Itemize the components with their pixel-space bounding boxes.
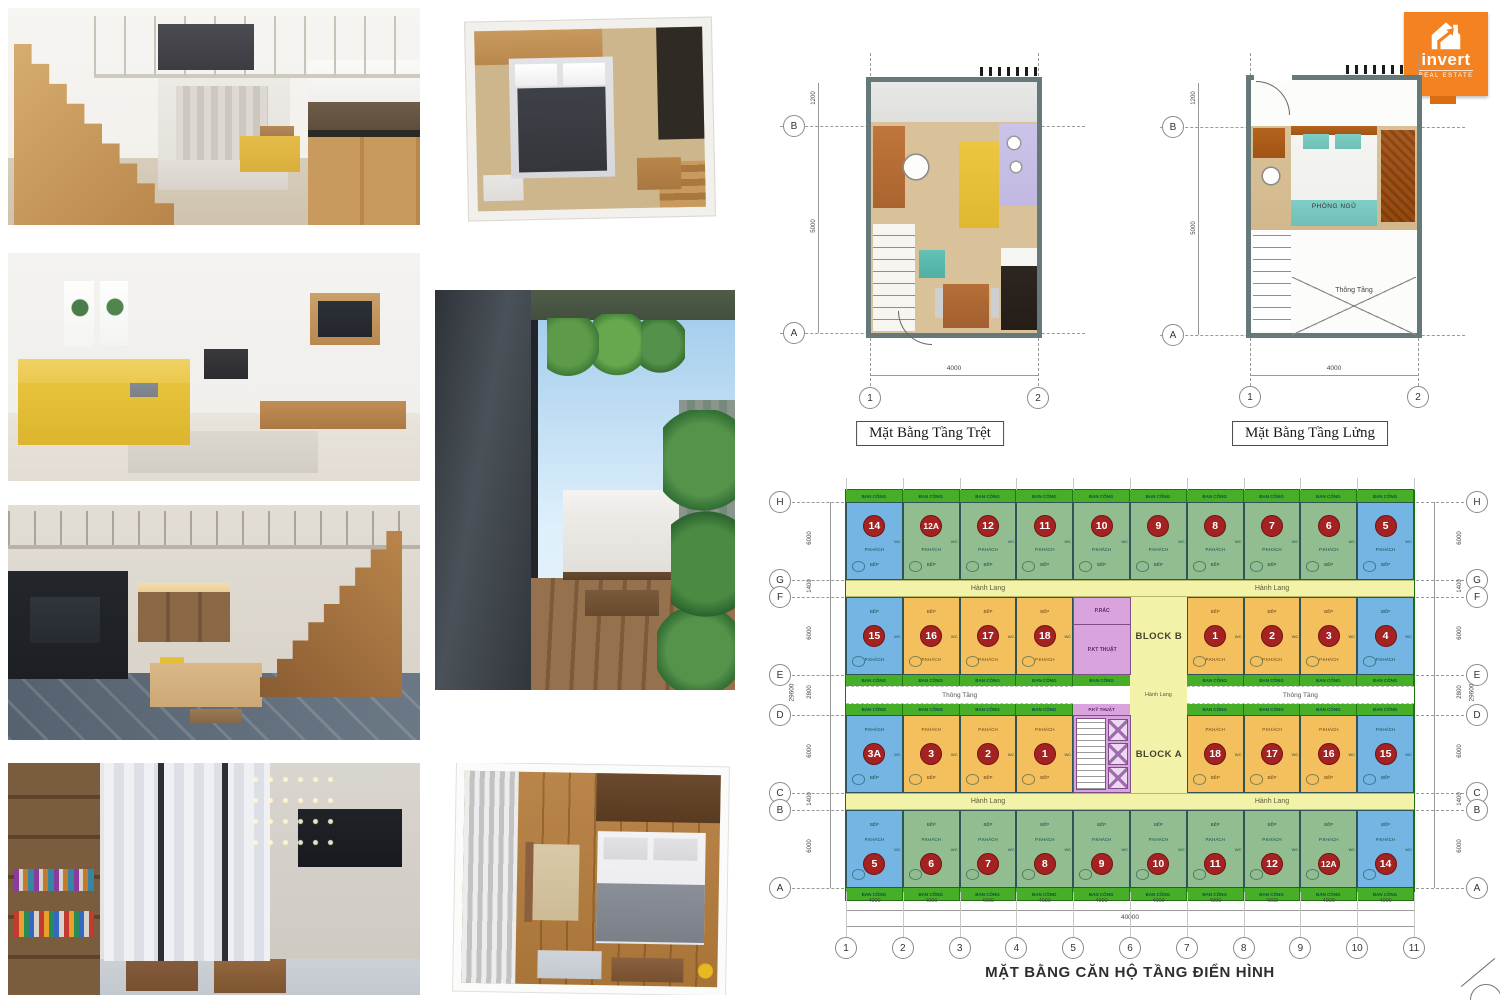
unit-number-badge: 14 (1375, 853, 1397, 875)
grid-marker-8: 8 (1233, 937, 1255, 959)
dimension-label: 5000 (811, 206, 817, 246)
kitchen-label: BẾP (1267, 776, 1276, 781)
living-room-label: P.KHÁCH (865, 728, 884, 733)
corridor-connector: Hành Lang (1130, 686, 1187, 704)
living-room-label: P.KHÁCH (1262, 658, 1281, 663)
wooden-staircase-shape (260, 531, 402, 697)
corridor-label: Hành Lang (971, 585, 1005, 592)
grid-leader-line (792, 502, 844, 503)
grid-leader-line (903, 478, 904, 490)
dimension-line (818, 83, 819, 333)
unit-number-badge: 11 (1034, 515, 1056, 537)
balcony-cell: BAN CÔNG (1016, 490, 1073, 502)
wc-label: WC (951, 752, 958, 757)
living-room-label: P.KHÁCH (1205, 728, 1224, 733)
balcony-cell: BAN CÔNG (846, 490, 903, 502)
dimension-line (1198, 83, 1199, 335)
unit-number-badge: 6 (1318, 515, 1340, 537)
living-room-label: P.KHÁCH (978, 728, 997, 733)
living-room-label: P.KHÁCH (921, 838, 940, 843)
dimension-label: 6000 (1457, 518, 1463, 558)
unit-number-badge: 7 (977, 853, 999, 875)
apartment-unit-11: BẾPP.KHÁCH11WC (1187, 810, 1244, 888)
unit-number-badge: 9 (1147, 515, 1169, 537)
wc-label: WC (1405, 847, 1412, 852)
kitchen-label: BẾP (870, 823, 879, 828)
unit-number-badge: 1 (1204, 625, 1226, 647)
balcony-cell: BAN CÔNG (903, 490, 960, 502)
balcony-cell: BAN CÔNG (960, 490, 1017, 502)
kitchen-label: BẾP (983, 563, 992, 568)
dimension-label: 6000 (1457, 731, 1463, 771)
balcony-segment: BAN CÔNGBAN CÔNGBAN CÔNGBAN CÔNG (1187, 675, 1414, 686)
balcony-strip-mid-upper: BAN CÔNGBAN CÔNGBAN CÔNGBAN CÔNG BAN CÔN… (846, 675, 1414, 686)
grid-leader-line (903, 892, 904, 937)
wc-label: WC (951, 634, 958, 639)
unit-number-badge: 18 (1034, 625, 1056, 647)
railing-hatch (1346, 65, 1404, 74)
dimension-label: 4000 (1357, 898, 1414, 904)
apartment-unit-14: BẾPP.KHÁCH14WC (1357, 810, 1414, 888)
trash-room-label: P.RÁC (1074, 598, 1130, 625)
grid-marker-H: H (769, 491, 791, 513)
living-room-label: P.KHÁCH (1262, 838, 1281, 843)
living-room-label: P.KHÁCH (921, 658, 940, 663)
dimension-label: 4000 (1187, 898, 1244, 904)
photo-living-room-yellow-sofa (8, 253, 420, 481)
grid-marker-4: 4 (1005, 937, 1027, 959)
unit-row-2: BẾP15P.KHÁCHWCBẾP16P.KHÁCHWCBẾP17P.KHÁCH… (846, 597, 1414, 675)
dimension-label: 6000 (807, 518, 813, 558)
kitchen-label: BẾP (1154, 823, 1163, 828)
living-room-label: P.KHÁCH (1205, 548, 1224, 553)
door-swing-arc (898, 311, 932, 345)
dimension-label: 4000 (1073, 898, 1130, 904)
unit-number-badge: 8 (1204, 515, 1226, 537)
dimension-label: 1400 (807, 779, 813, 819)
dimension-label: 6000 (807, 613, 813, 653)
living-room-label: P.KHÁCH (1376, 838, 1395, 843)
unit-number-badge: 12 (977, 515, 999, 537)
wc-label: WC (1349, 752, 1356, 757)
dimension-line (1250, 375, 1418, 376)
wc-label: WC (1065, 634, 1072, 639)
unit-number-badge: 15 (863, 625, 885, 647)
balcony-cell: BAN CÔNG (1187, 490, 1244, 502)
void-label: Thông Tầng (942, 692, 977, 699)
unit-number-badge: 6 (920, 853, 942, 875)
unit-number-badge: 5 (1375, 515, 1397, 537)
grid-marker-7: 7 (1176, 937, 1198, 959)
corridor-strip: Hành Lang Hành Lang (846, 793, 1414, 810)
grid-leader-line (1187, 478, 1188, 490)
apartment-walls (866, 77, 1042, 338)
typical-plan-caption: MẶT BẰNG CĂN HỘ TẦNG ĐIỂN HÌNH (846, 964, 1414, 981)
corridor-connector (1130, 704, 1187, 715)
grid-marker-A: A (1466, 877, 1488, 899)
unit-number-badge: 17 (1261, 743, 1283, 765)
grid-leader-line (792, 715, 844, 716)
living-room-label: P.KHÁCH (1149, 838, 1168, 843)
unit-group-right: P.KHÁCH18BẾPWCP.KHÁCH17BẾPWCP.KHÁCH16BẾP… (1187, 715, 1414, 793)
dimension-label: 4000 (1300, 898, 1357, 904)
grid-leader-line (1416, 715, 1464, 716)
kitchen-label: BẾP (1097, 563, 1106, 568)
unit-row-4: BẾPP.KHÁCH5WCBẾPP.KHÁCH6WCBẾPP.KHÁCH7WCB… (846, 810, 1414, 888)
kitchen-label: BẾP (1267, 610, 1276, 615)
dimension-total: 29600 (789, 673, 796, 713)
grid-leader-line (846, 892, 847, 937)
grid-leader-line (1357, 478, 1358, 490)
kitchen-label: BẾP (1381, 563, 1390, 568)
balcony-cell: BAN CÔNG (1357, 704, 1414, 715)
block-a-label: BLOCK A (1136, 749, 1182, 760)
apartment-unit-8: 8P.KHÁCHBẾPWC (1187, 502, 1244, 580)
grid-marker-F: F (769, 586, 791, 608)
kitchen-label: BẾP (1381, 823, 1390, 828)
building-core-block-b: P.RÁC P.KT THUẬT BLOCK B (1073, 597, 1187, 675)
wc-label: WC (1008, 539, 1015, 544)
balcony-cell: BAN CÔNG (903, 675, 960, 686)
grid-marker-11: 11 (1403, 937, 1425, 959)
grid-leader-line (1300, 478, 1301, 490)
grid-leader-line (1414, 892, 1415, 937)
apartment-unit-6: BẾPP.KHÁCH6WC (903, 810, 960, 888)
wc-label: WC (1292, 634, 1299, 639)
unit-number-badge: 12A (1318, 853, 1340, 875)
balcony-cell: BAN CÔNG (846, 675, 903, 686)
living-room-label: P.KHÁCH (978, 548, 997, 553)
corridor-label: Hành Lang (1145, 692, 1172, 698)
balcony-cell: BAN CÔNG (1016, 704, 1073, 715)
brochure-page: invert REAL ESTATE B A 1 2 1200 5000 400… (0, 0, 1500, 1000)
balcony-cell: BAN CÔNG (1300, 675, 1357, 686)
wc-label: WC (1065, 752, 1072, 757)
grid-leader-line (960, 478, 961, 490)
corridor-label: Hành Lang (1255, 798, 1289, 805)
void-area-right: Thông Tầng (1187, 686, 1414, 704)
apartment-unit-12: 12P.KHÁCHBẾPWC (960, 502, 1017, 580)
wc-label: WC (894, 847, 901, 852)
technical-rooms: P.RÁC P.KT THUẬT (1073, 597, 1131, 675)
elevator-shafts (1108, 718, 1128, 790)
living-room-label: P.KHÁCH (1035, 728, 1054, 733)
balcony-cell: BAN CÔNG (1244, 490, 1301, 502)
dimension-line (870, 375, 1038, 376)
grid-leader-line (792, 580, 844, 581)
living-room-label: P.KHÁCH (1149, 548, 1168, 553)
living-room-label: P.KHÁCH (865, 838, 884, 843)
unit-row-3: P.KHÁCH3ABẾPWCP.KHÁCH3BẾPWCP.KHÁCH2BẾPWC… (846, 715, 1414, 793)
living-room-label: P.KHÁCH (921, 548, 940, 553)
unit-row-1: 14P.KHÁCHBẾPWC12AP.KHÁCHBẾPWC12P.KHÁCHBẾ… (846, 502, 1414, 580)
apartment-unit-7: BẾPP.KHÁCH7WC (960, 810, 1017, 888)
unit-number-badge: 17 (977, 625, 999, 647)
grid-leader-line (1130, 478, 1131, 490)
grid-leader-line (1187, 892, 1188, 937)
building-core-block-a: BLOCK A (1073, 715, 1187, 793)
apartment-unit-9: 9P.KHÁCHBẾPWC (1130, 502, 1187, 580)
living-room-label: P.KHÁCH (1035, 658, 1054, 663)
apartment-unit-9: BẾPP.KHÁCH9WC (1073, 810, 1130, 888)
balcony-cell: BAN CÔNG (1073, 490, 1130, 502)
kitchen-label: BẾP (1040, 563, 1049, 568)
living-room-label: P.KHÁCH (1035, 548, 1054, 553)
wc-label: WC (1349, 634, 1356, 639)
kitchen-label: BẾP (870, 776, 879, 781)
balcony-segment: BAN CÔNGBAN CÔNGBAN CÔNGBAN CÔNG (846, 675, 1073, 686)
unit-group-left: P.KHÁCH3ABẾPWCP.KHÁCH3BẾPWCP.KHÁCH2BẾPWC… (846, 715, 1073, 793)
room-furniture-shapes (474, 27, 706, 212)
unit-number-badge: 18 (1204, 743, 1226, 765)
apartment-unit-18: BẾP18P.KHÁCHWC (1016, 597, 1073, 675)
balcony-strip-mid-lower: BAN CÔNGBAN CÔNGBAN CÔNGBAN CÔNG P.KỸ TH… (846, 704, 1414, 715)
wc-label: WC (1349, 847, 1356, 852)
living-room-label: P.KHÁCH (1319, 658, 1338, 663)
dimension-total: 29600 (1469, 673, 1476, 713)
balcony-cell: BAN CÔNG (1244, 675, 1301, 686)
grid-leader-line (846, 478, 847, 490)
kitchen-label: BẾP (870, 610, 879, 615)
wc-label: WC (1121, 847, 1128, 852)
wc-label: WC (1178, 539, 1185, 544)
dimension-label: 6000 (1457, 613, 1463, 653)
apartment-unit-14: 14P.KHÁCHBẾPWC (846, 502, 903, 580)
balcony-segment: BAN CÔNGBAN CÔNGBAN CÔNGBAN CÔNG (846, 704, 1073, 715)
wc-label: WC (1292, 539, 1299, 544)
unit-number-badge: 4 (1375, 625, 1397, 647)
grid-leader-line (1073, 478, 1074, 490)
grid-leader-line (1300, 892, 1301, 937)
grid-leader-line (792, 810, 844, 811)
apartment-unit-11: 11P.KHÁCHBẾPWC (1016, 502, 1073, 580)
room-furniture-shapes (461, 771, 721, 987)
dimension-label: 4000 (846, 898, 903, 904)
living-room-label: P.KHÁCH (1262, 548, 1281, 553)
living-room-label: P.KHÁCH (978, 838, 997, 843)
wc-label: WC (1008, 752, 1015, 757)
apartment-unit-17: BẾP17P.KHÁCHWC (960, 597, 1017, 675)
wc-label: WC (1065, 539, 1072, 544)
unit-number-badge: 5 (863, 853, 885, 875)
unit-group-right: BẾP1P.KHÁCHWCBẾP2P.KHÁCHWCBẾP3P.KHÁCHWCB… (1187, 597, 1414, 675)
grid-marker-B: B (783, 115, 805, 137)
plan-caption: Mặt Bằng Tầng Trệt (856, 421, 1004, 446)
unit-number-badge: 16 (1318, 743, 1340, 765)
block-a-area: BLOCK A (1131, 715, 1187, 793)
living-room-label: P.KHÁCH (865, 548, 884, 553)
grid-leader-line (960, 892, 961, 937)
kitchen-label: BẾP (1154, 563, 1163, 568)
room-outline-shape (465, 17, 715, 220)
dimension-label: 6000 (1457, 826, 1463, 866)
typical-plan-body: BAN CÔNGBAN CÔNGBAN CÔNGBAN CÔNGBAN CÔNG… (846, 490, 1414, 900)
void-label: Thông Tầng (1283, 692, 1318, 699)
grid-leader-line (792, 675, 844, 676)
grid-marker-A: A (769, 877, 791, 899)
kitchen-label: BẾP (1381, 776, 1390, 781)
kitchen-label: BẾP (927, 776, 936, 781)
living-room-label: P.KHÁCH (1262, 728, 1281, 733)
dimension-label: 6000 (807, 826, 813, 866)
kitchen-label: BẾP (1324, 610, 1333, 615)
block-b-area: BLOCK B (1131, 597, 1187, 675)
dimension-label: 4000 (1130, 898, 1187, 904)
apartment-unit-3A: P.KHÁCH3ABẾPWC (846, 715, 903, 793)
unit-number-badge: 12A (920, 515, 942, 537)
void-strip: Thông Tầng Hành Lang Thông Tầng (846, 686, 1414, 704)
corridor-connector (1130, 675, 1187, 686)
living-room-label: P.KHÁCH (978, 658, 997, 663)
railing-hatch (980, 67, 1038, 76)
door-opening (1254, 72, 1292, 81)
apartment-unit-17: P.KHÁCH17BẾPWC (1244, 715, 1301, 793)
wc-label: WC (1008, 634, 1015, 639)
photo-3d-top-view-apartment-2 (445, 763, 737, 995)
grid-marker-2: 2 (892, 937, 914, 959)
wooden-staircase-shape (14, 44, 174, 225)
apartment-unit-4: BẾP4P.KHÁCHWC (1357, 597, 1414, 675)
wc-label: WC (1121, 539, 1128, 544)
kitchen-label: BẾP (983, 823, 992, 828)
living-room-label: P.KHÁCH (1376, 548, 1395, 553)
living-room-label: P.KHÁCH (1319, 548, 1338, 553)
apartment-unit-16: P.KHÁCH16BẾPWC (1300, 715, 1357, 793)
north-arrow-circle (1470, 984, 1500, 1000)
wc-label: WC (1292, 752, 1299, 757)
balcony-cell: BAN CÔNG (1073, 675, 1130, 686)
living-room-label: P.KHÁCH (1205, 658, 1224, 663)
apartment-unit-12A: BẾPP.KHÁCH12AWC (1300, 810, 1357, 888)
void-core-cell (1073, 686, 1130, 704)
apartment-unit-15: P.KHÁCH15BẾPWC (1357, 715, 1414, 793)
apartment-unit-15: BẾP15P.KHÁCHWC (846, 597, 903, 675)
kitchen-label: BẾP (1267, 563, 1276, 568)
living-room-label: P.KHÁCH (1205, 838, 1224, 843)
unit-number-badge: 10 (1147, 853, 1169, 875)
living-room-label: P.KHÁCH (865, 658, 884, 663)
ground-floor-plan: B A 1 2 1200 5000 4000 Mặt Bằng Tầng Trệ… (770, 25, 1090, 450)
unit-number-badge: 3 (1318, 625, 1340, 647)
apartment-unit-1: P.KHÁCH1BẾPWC (1016, 715, 1073, 793)
dimension-label: 1200 (1191, 78, 1197, 118)
grid-leader-line (1416, 888, 1464, 889)
grid-leader-line (1016, 478, 1017, 490)
kitchen-label: BẾP (870, 563, 879, 568)
unit-number-badge: 1 (1034, 743, 1056, 765)
kitchen-label: BẾP (1324, 823, 1333, 828)
grid-leader-line (1130, 892, 1131, 937)
dimension-label: 4000 (960, 898, 1017, 904)
living-room-label: P.KHÁCH (1376, 658, 1395, 663)
grid-leader-line (1416, 502, 1464, 503)
apartment-unit-6: 6P.KHÁCHBẾPWC (1300, 502, 1357, 580)
stair-lift-core (1073, 715, 1131, 793)
photo-3d-top-view-apartment-1 (445, 8, 740, 230)
mezzanine-floor-plan: B A 1 2 1200 5000 4000 PHÒNG NGỦ Thông T… (1150, 25, 1470, 450)
unit-number-badge: 14 (863, 515, 885, 537)
apartment-unit-10: 10P.KHÁCHBẾPWC (1073, 502, 1130, 580)
kitchen-label: BẾP (1381, 610, 1390, 615)
wc-label: WC (1235, 752, 1242, 757)
dimension-label: 4000 (1244, 898, 1301, 904)
grid-marker-3: 3 (949, 937, 971, 959)
photo-loft-bedroom-library (8, 763, 420, 995)
wc-label: WC (894, 539, 901, 544)
balcony-segment: BAN CÔNGBAN CÔNGBAN CÔNGBAN CÔNG (1187, 704, 1414, 715)
unit-number-badge: 7 (1261, 515, 1283, 537)
kitchen-label: BẾP (1211, 823, 1220, 828)
grid-leader-line (792, 597, 844, 598)
wc-label: WC (1065, 847, 1072, 852)
plan-caption: Mặt Bằng Tầng Lửng (1232, 421, 1388, 446)
apartment-unit-12: BẾPP.KHÁCH12WC (1244, 810, 1301, 888)
kitchen-label: BẾP (1211, 776, 1220, 781)
balcony-cell: BAN CÔNG (1130, 490, 1187, 502)
dimension-label: 1400 (807, 566, 813, 606)
grid-leader-line (792, 888, 844, 889)
photo-balcony-garden (435, 290, 735, 690)
kitchen-label: BẾP (1267, 823, 1276, 828)
grid-marker-9: 9 (1289, 937, 1311, 959)
technical-room-label: P.KT THUẬT (1074, 625, 1130, 674)
kitchen-label: BẾP (983, 776, 992, 781)
balcony-cell: BAN CÔNG (1357, 490, 1414, 502)
grid-marker-1: 1 (835, 937, 857, 959)
wc-label: WC (1235, 634, 1242, 639)
grid-marker-A: A (1162, 324, 1184, 346)
string-lights-shape (248, 769, 338, 859)
dimension-label: 1200 (811, 78, 817, 118)
corridor-label: Hành Lang (971, 798, 1005, 805)
dimension-label: 1400 (1457, 566, 1463, 606)
grid-marker-A: A (783, 322, 805, 344)
grid-marker-H: H (1466, 491, 1488, 513)
kitchen-label: BẾP (1324, 776, 1333, 781)
dimension-label: 2800 (1457, 672, 1463, 712)
kitchen-label: BẾP (1040, 823, 1049, 828)
grid-marker-2: 2 (1027, 387, 1049, 409)
kitchen-label: BẾP (1324, 563, 1333, 568)
corridor-strip: Hành Lang Hành Lang (846, 580, 1414, 597)
grid-leader-line (1357, 892, 1358, 937)
void-label: Thông Tầng (1292, 287, 1416, 294)
kitchen-label: BẾP (1211, 610, 1220, 615)
grid-marker-B: B (769, 799, 791, 821)
unit-number-badge: 2 (1261, 625, 1283, 647)
wc-label: WC (1235, 847, 1242, 852)
bedroom-label: PHÒNG NGỦ (1286, 203, 1382, 210)
apartment-unit-10: BẾPP.KHÁCH10WC (1130, 810, 1187, 888)
wc-label: WC (1235, 539, 1242, 544)
wc-label: WC (894, 752, 901, 757)
photo-dark-loft-living (8, 505, 420, 740)
grid-leader-line (1016, 892, 1017, 937)
north-arrow-line (1461, 958, 1495, 987)
void-area-left: Thông Tầng (846, 686, 1073, 704)
apartment-unit-5: 5P.KHÁCHBẾPWC (1357, 502, 1414, 580)
apartment-unit-7: 7P.KHÁCHBẾPWC (1244, 502, 1301, 580)
photo-loft-living-interior (8, 8, 420, 225)
grid-marker-2: 2 (1407, 386, 1429, 408)
dimension-label: 6000 (807, 731, 813, 771)
living-room-label: P.KHÁCH (1319, 838, 1338, 843)
staircase-shape (1076, 718, 1106, 790)
dimension-label: 4000 (870, 365, 1038, 372)
grid-marker-6: 6 (1119, 937, 1141, 959)
kitchen-label: BẾP (1211, 563, 1220, 568)
wc-label: WC (1008, 847, 1015, 852)
